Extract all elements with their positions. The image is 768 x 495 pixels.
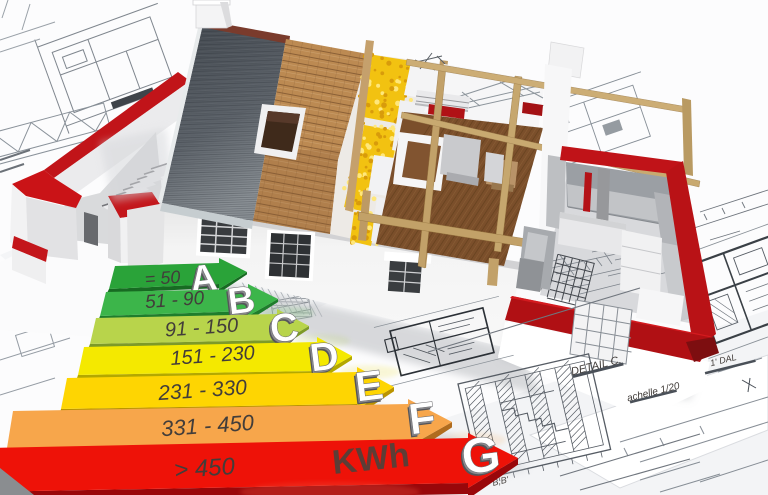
svg-text:= 50: = 50 [144,267,181,289]
svg-text:51 - 90: 51 - 90 [144,288,205,313]
svg-text:G: G [458,425,503,485]
svg-text:> 450: > 450 [173,453,236,484]
svg-text:KWh: KWh [330,436,411,482]
svg-text:E: E [352,361,386,411]
